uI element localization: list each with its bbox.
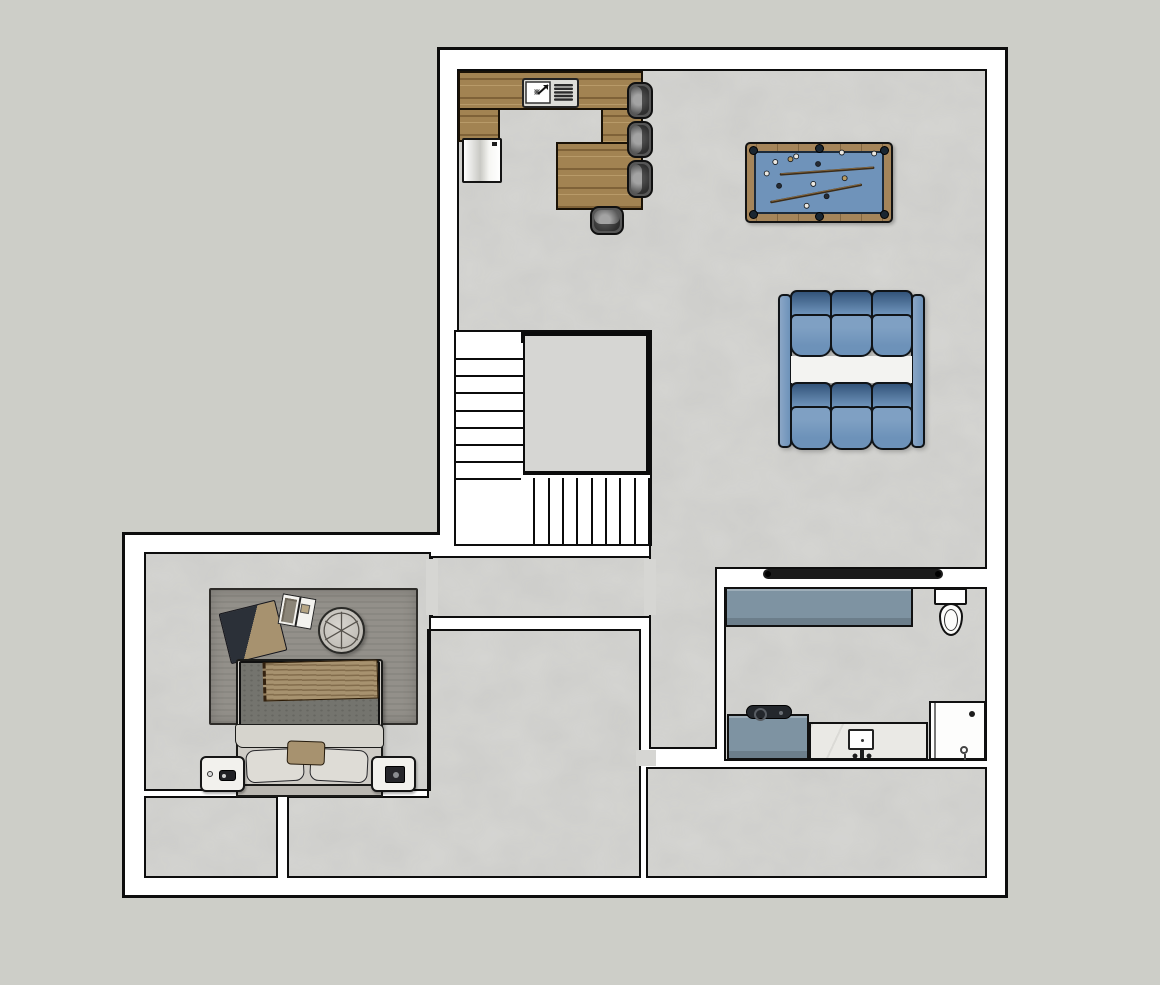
pool-ball [811, 181, 816, 186]
stair-tread [607, 478, 621, 544]
bar-stool [590, 206, 624, 235]
stairwell-opening [521, 332, 650, 475]
stair-upper-flight [456, 343, 523, 480]
stair-tread [621, 478, 635, 544]
stair-tread [456, 429, 523, 446]
sofa-seat-cushion [871, 406, 913, 450]
pool-ball [842, 176, 847, 181]
pool-ball [804, 203, 809, 208]
bar-stool [627, 160, 653, 198]
pool-ball [794, 154, 799, 159]
sink-detail [524, 80, 577, 106]
stool-seat [594, 210, 620, 231]
bed-throw-blanket [263, 660, 379, 702]
pool-ball [788, 157, 793, 162]
pool-ball [777, 183, 782, 188]
vanity-sink [848, 729, 874, 750]
shower-stall [929, 701, 986, 760]
bathroom-low-cabinet [727, 714, 809, 760]
hallway-doorway [644, 559, 656, 615]
sofa-seat-cushion [790, 314, 832, 357]
nightstand-left [200, 756, 245, 792]
den-doorway [636, 750, 656, 766]
pool-cue [771, 185, 860, 202]
bar-stool [627, 121, 653, 158]
nightstand-knob [207, 771, 213, 777]
stool-seat [631, 86, 649, 115]
sofa-arm-right [911, 294, 925, 448]
bathroom-vanity [809, 722, 928, 760]
open-book [278, 593, 317, 629]
sofa-row-front [791, 382, 912, 450]
stair-tread [456, 463, 523, 480]
ottoman-tufting [320, 609, 363, 652]
bathroom-storage-cabinet [725, 587, 913, 627]
stair-tread [456, 394, 523, 411]
wall-mounted-tv [763, 569, 943, 579]
bar-counter-left-leg [458, 108, 500, 142]
bedside-speaker [385, 766, 405, 783]
stair-tread [456, 377, 523, 394]
sofa-seat-cushion [830, 406, 872, 450]
round-tufted-ottoman [318, 607, 365, 654]
bar-stool [627, 82, 653, 119]
stair-tread [521, 478, 535, 544]
record-player [746, 705, 792, 719]
bar-sink [522, 78, 579, 108]
stair-lower-flight [521, 478, 650, 544]
stair-tread [535, 478, 549, 544]
pool-ball [872, 151, 877, 156]
sofa-row-back [791, 290, 912, 357]
shower-head [969, 711, 975, 717]
stool-seat [631, 164, 649, 194]
pool-cue-highlight [771, 184, 860, 201]
book-page-image [300, 604, 310, 614]
pool-cue-highlight [781, 167, 873, 174]
sofa-seats [791, 314, 912, 357]
stair-tread [456, 412, 523, 429]
pool-ball [824, 194, 829, 199]
phone-dock [219, 770, 236, 781]
stair-tread [456, 360, 523, 377]
nightstand-right [371, 756, 416, 792]
sofa-seat-cushion [871, 314, 913, 357]
shower-door [934, 703, 936, 758]
pool-ball [816, 161, 821, 166]
staircase [454, 330, 652, 546]
pool-balls-and-cues [747, 144, 891, 221]
bed-accent-pillow [287, 740, 326, 765]
pool-table [745, 142, 893, 223]
stair-tread [456, 446, 523, 463]
vanity-faucet [852, 748, 872, 762]
stool-seat [631, 125, 649, 154]
stair-tread [593, 478, 607, 544]
stair-tread [636, 478, 650, 544]
pool-ball [764, 171, 769, 176]
stair-tread [550, 478, 564, 544]
bed-headboard [236, 784, 383, 797]
sofa-seats [791, 406, 912, 450]
sofa-seat-cushion [830, 314, 872, 357]
sofa-row-gap [791, 356, 912, 383]
hand-sprayer [960, 746, 968, 754]
pool-ball [773, 160, 778, 165]
pool-cue [781, 168, 873, 175]
stair-tread [564, 478, 578, 544]
stair-tread [578, 478, 592, 544]
basement-floor-plan [0, 0, 1160, 985]
stair-tread [456, 343, 523, 360]
theater-sofa-sectional [778, 290, 925, 450]
mini-fridge [462, 138, 502, 183]
pool-ball [839, 150, 844, 155]
bedroom-doorway [426, 559, 438, 615]
sofa-seat-cushion [790, 406, 832, 450]
